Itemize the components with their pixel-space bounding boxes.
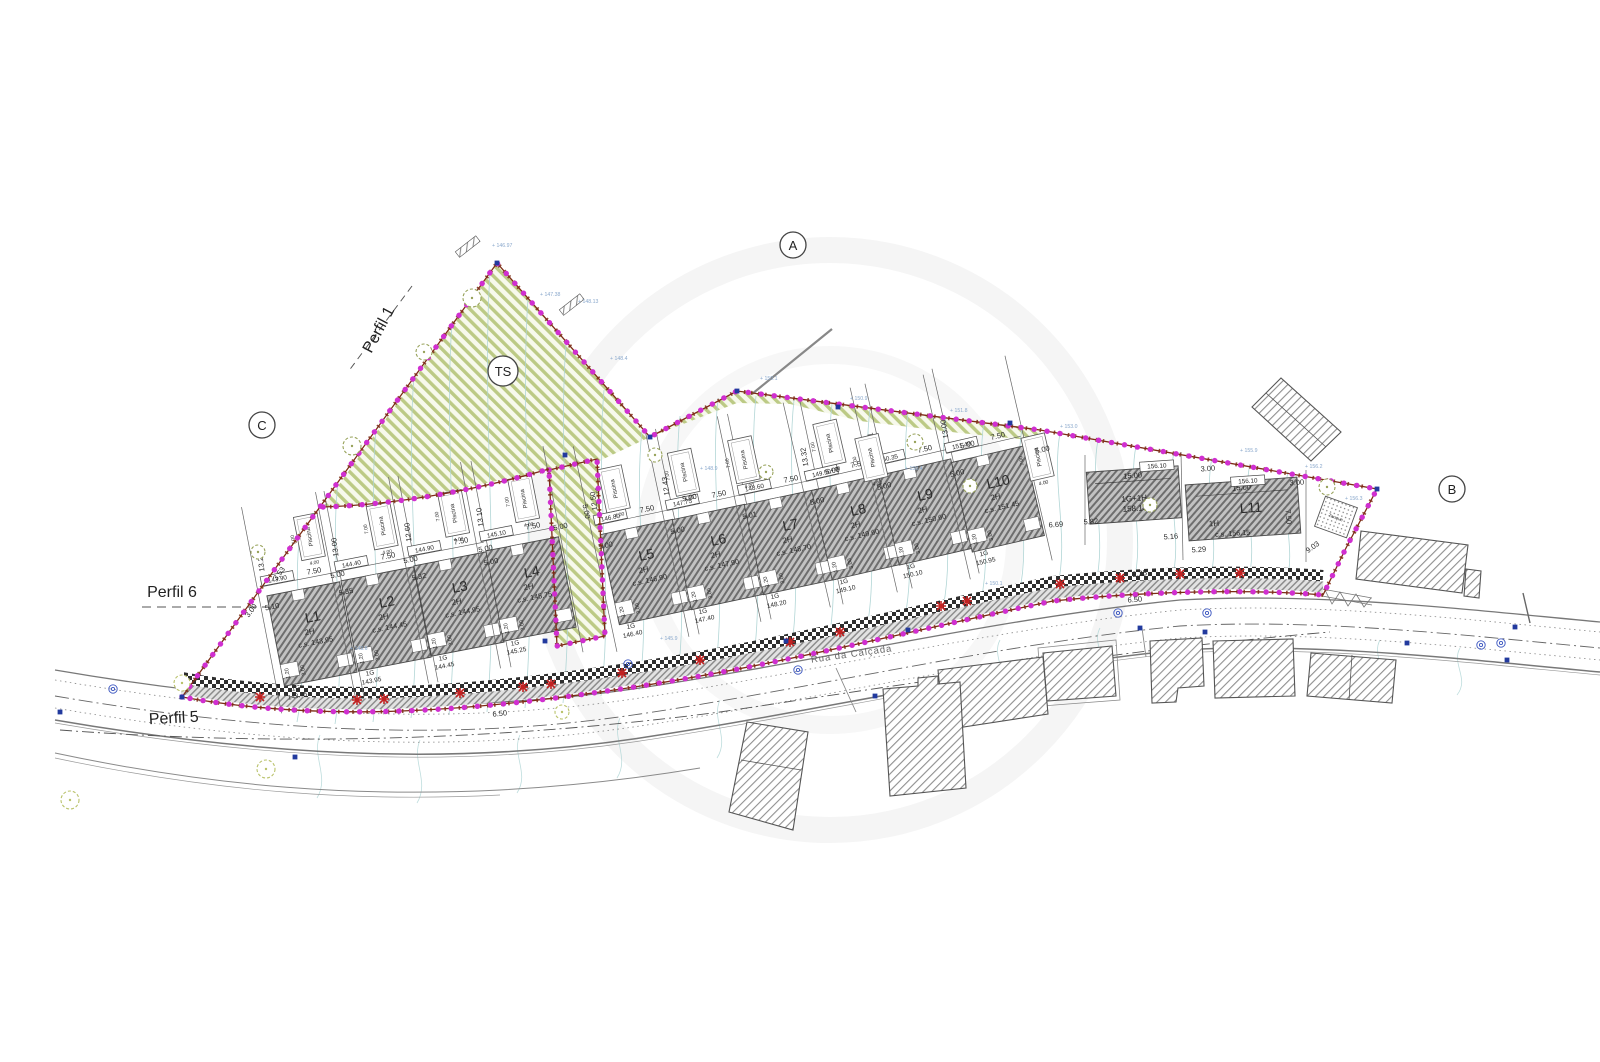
- spot-elevation-label: + 147.38: [540, 292, 560, 298]
- svg-text:13.10: 13.10: [474, 507, 485, 527]
- red-cross-marker-icon: [1115, 573, 1125, 583]
- manhole-icon: [794, 666, 802, 674]
- red-cross-marker-icon: [255, 692, 265, 702]
- marker-b-label: B: [1448, 482, 1457, 497]
- svg-text:148.20: 148.20: [766, 599, 787, 610]
- survey-point-icon: [873, 694, 878, 699]
- survey-point-icon: [180, 695, 185, 700]
- annex-building: 15.001G+1H158.15: [1086, 466, 1181, 524]
- spot-elevation-label: + 155.9: [1240, 448, 1258, 454]
- svg-text:7.00: 7.00: [504, 496, 512, 507]
- survey-point-icon: [1008, 421, 1013, 426]
- svg-text:7.50: 7.50: [306, 565, 322, 577]
- existing-building: [1252, 378, 1341, 461]
- red-cross-marker-icon: [455, 688, 465, 698]
- dim-label: 5.16: [1163, 532, 1178, 542]
- site-plan-canvas: L12Hc.s. 143.951G143.451.203.00143.907.5…: [0, 0, 1600, 1062]
- svg-text:150.10: 150.10: [902, 569, 923, 580]
- red-cross-marker-icon: [379, 694, 389, 704]
- site-plan-drawing: L12Hc.s. 143.951G143.451.203.00143.907.5…: [0, 0, 1600, 1062]
- svg-text:143.95: 143.95: [361, 676, 382, 687]
- existing-building: [1043, 646, 1116, 701]
- red-cross-marker-icon: [835, 627, 845, 637]
- svg-text:15.00: 15.00: [1123, 470, 1142, 480]
- survey-point-icon: [1405, 641, 1410, 646]
- culvert-icon: [455, 236, 480, 258]
- survey-point-icon: [293, 755, 298, 760]
- ts-marker: TS: [488, 356, 518, 386]
- survey-point-icon: [836, 405, 841, 410]
- survey-point-icon: [906, 628, 911, 633]
- survey-point-icon: [495, 261, 500, 266]
- svg-text:1H: 1H: [1209, 519, 1220, 529]
- lot-label-L2: L2: [378, 592, 397, 611]
- dim-label: 6.50: [492, 708, 507, 718]
- survey-point-icon: [1375, 487, 1380, 492]
- manhole-icon: [1203, 609, 1211, 617]
- svg-text:13.00: 13.00: [329, 537, 340, 557]
- dim-label: 5.00: [402, 554, 418, 566]
- spot-elevation-label: + 145.9: [660, 636, 678, 642]
- dim-label: 5.00: [329, 569, 345, 581]
- spot-elevation-label: + 146.97: [492, 243, 512, 249]
- dim-label: 3.00: [1200, 464, 1215, 474]
- spot-elevation-label: + 151.8: [950, 408, 968, 414]
- survey-point-icon: [1138, 626, 1143, 631]
- svg-text:7.00: 7.00: [363, 524, 371, 535]
- generated-drawing-layer: L12Hc.s. 143.951G143.451.203.00143.907.5…: [55, 236, 1600, 830]
- perfil-6-label: Perfil 6: [147, 584, 197, 601]
- spot-elevation-label: + 148.9: [700, 466, 718, 472]
- spot-elevation-label: + 156.3: [1345, 496, 1363, 502]
- dim-label: 5.29: [1191, 545, 1206, 555]
- red-cross-marker-icon: [617, 668, 627, 678]
- dim-label: 5.82: [1083, 517, 1098, 527]
- pole-icon: [1523, 593, 1530, 623]
- red-cross-marker-icon: [1235, 568, 1245, 578]
- elevation-box-label: 156.10: [1147, 462, 1167, 470]
- svg-text:7.00: 7.00: [664, 470, 672, 481]
- ts-label: TS: [495, 364, 512, 379]
- red-cross-marker-icon: [352, 695, 362, 705]
- section-marker-b: B: [1439, 476, 1465, 502]
- spot-elevation-label: + 150.1: [760, 376, 778, 382]
- svg-text:12.60: 12.60: [402, 522, 413, 542]
- svg-text:7.00: 7.00: [724, 458, 732, 469]
- spot-elevation-label: + 156.2: [1305, 464, 1323, 470]
- elevation-box-label: 156.10: [1238, 477, 1258, 485]
- lot-label-L4: L4: [523, 562, 542, 581]
- existing-building: [729, 722, 808, 830]
- svg-text:7.00: 7.00: [434, 511, 442, 522]
- marker-c-label: C: [257, 418, 266, 433]
- guardrail-icon: [1322, 589, 1372, 607]
- dim-label: 9.03: [1304, 539, 1321, 555]
- perfil-1-label: Perfil 1: [360, 304, 398, 356]
- svg-text:145.25: 145.25: [506, 646, 527, 657]
- section-marker-c: C: [249, 412, 275, 438]
- red-cross-marker-icon: [1175, 569, 1185, 579]
- existing-building: [1213, 639, 1295, 698]
- existing-building: [883, 676, 966, 796]
- red-cross-marker-icon: [1055, 579, 1065, 589]
- spot-elevation-label: + 150.1: [985, 581, 1003, 587]
- red-cross-marker-icon: [546, 679, 556, 689]
- svg-text:146.40: 146.40: [622, 629, 643, 640]
- section-marker-a: A: [780, 232, 806, 258]
- existing-building: [1150, 638, 1204, 703]
- existing-building: [1464, 569, 1481, 598]
- survey-point-icon: [1203, 630, 1208, 635]
- perfil-5-label: Perfil 5: [148, 709, 199, 729]
- svg-text:147.40: 147.40: [694, 614, 715, 625]
- survey-point-icon: [543, 639, 548, 644]
- lot-label-L11: L11: [1239, 499, 1263, 517]
- existing-building: [1356, 531, 1468, 593]
- survey-point-icon: [735, 389, 740, 394]
- dim-label: 6.69: [1048, 520, 1063, 530]
- spot-elevation-label: + 148.4: [610, 356, 628, 362]
- spot-elevation-label: + 143.6: [350, 646, 368, 652]
- survey-point-icon: [563, 453, 568, 458]
- survey-point-icon: [1513, 625, 1518, 630]
- manhole-icon: [1497, 639, 1505, 647]
- svg-text:150.95: 150.95: [975, 556, 996, 567]
- lot-label-L1: L1: [304, 607, 323, 626]
- manhole-icon: [1477, 641, 1485, 649]
- spot-elevation-label: + 153.0: [1060, 424, 1078, 430]
- survey-point-icon: [784, 639, 789, 644]
- marker-a-label: A: [789, 238, 798, 253]
- spot-elevation-label: + 148.13: [578, 299, 598, 305]
- dim-label: 7.50: [1283, 509, 1293, 524]
- dim-label: 6.50: [1127, 594, 1142, 604]
- svg-text:4.00: 4.00: [1038, 479, 1049, 487]
- dim-label: 3.00: [1289, 478, 1304, 488]
- dim-label: 5.00: [824, 465, 840, 477]
- survey-point-icon: [1505, 658, 1510, 663]
- dim-label: 3.00: [243, 602, 259, 619]
- svg-text:149.10: 149.10: [835, 584, 856, 595]
- survey-point-icon: [648, 435, 653, 440]
- svg-text:13.32: 13.32: [798, 447, 810, 467]
- dim-label: 5.00: [959, 439, 975, 451]
- red-cross-marker-icon: [962, 596, 972, 606]
- red-cross-marker-icon: [518, 682, 528, 692]
- lot-label-L3: L3: [451, 577, 470, 596]
- spot-elevation-label: + 150.9: [850, 396, 868, 402]
- spot-elevation-label: + 150.4: [905, 466, 923, 472]
- survey-point-icon: [58, 710, 63, 715]
- red-cross-marker-icon: [936, 601, 946, 611]
- red-cross-marker-icon: [695, 655, 705, 665]
